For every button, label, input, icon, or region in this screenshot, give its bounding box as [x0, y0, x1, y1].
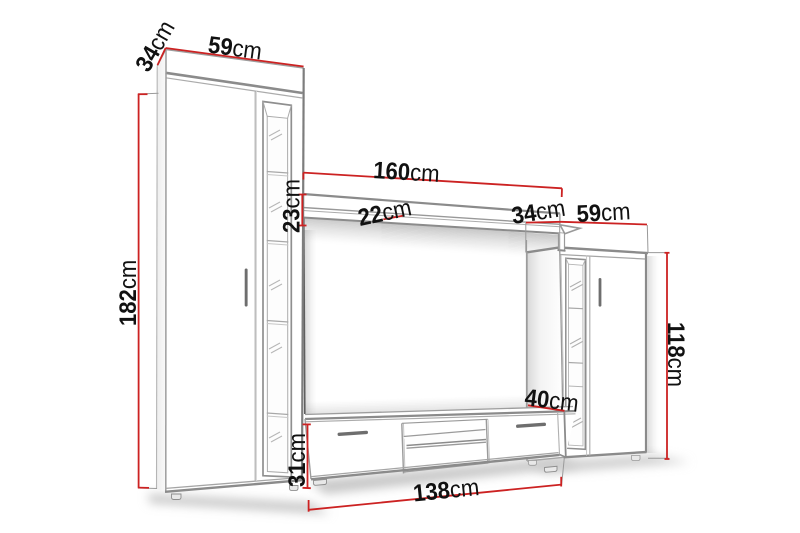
svg-text:160cm: 160cm: [373, 156, 441, 187]
svg-text:182cm: 182cm: [114, 260, 141, 326]
svg-text:23cm: 23cm: [278, 179, 305, 233]
svg-text:31cm: 31cm: [283, 433, 310, 487]
svg-text:59cm: 59cm: [576, 197, 631, 227]
svg-text:118cm: 118cm: [663, 322, 690, 387]
